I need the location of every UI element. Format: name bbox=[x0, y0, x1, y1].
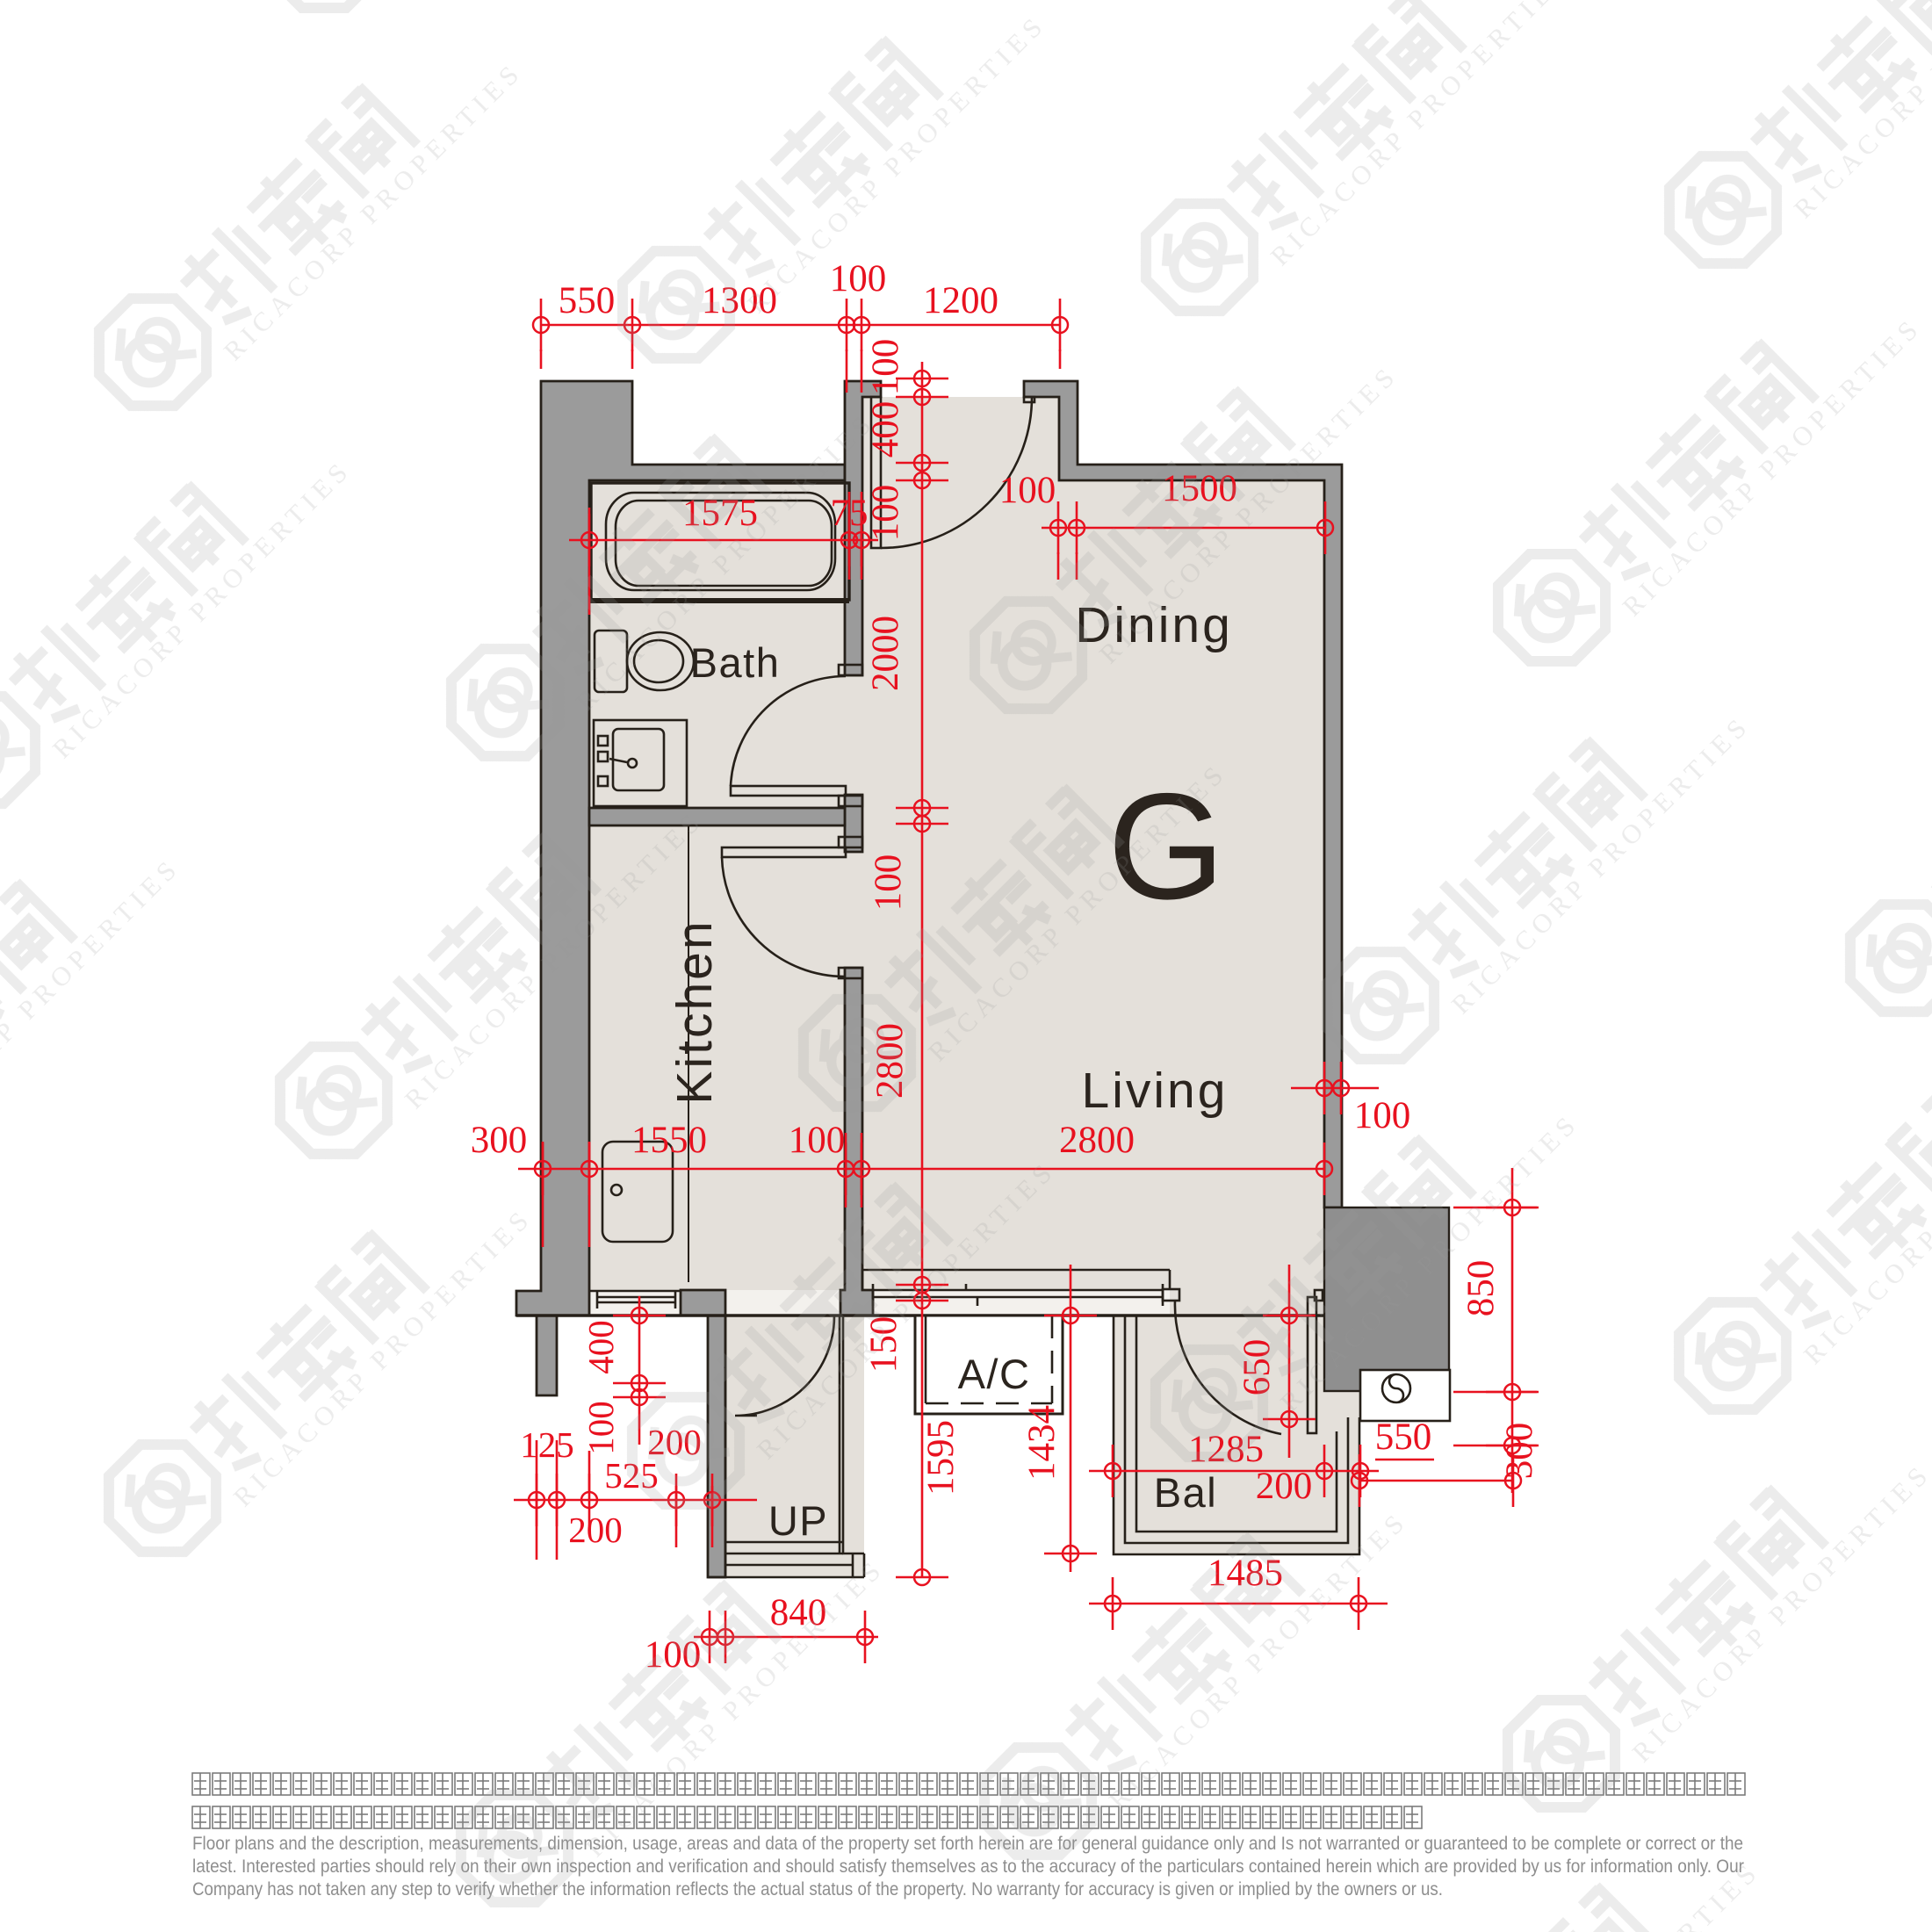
svg-text:A/C: A/C bbox=[958, 1351, 1031, 1397]
svg-text:latest. Interested parties sho: latest. Interested parties should rely o… bbox=[192, 1856, 1744, 1877]
svg-text:100: 100 bbox=[830, 258, 887, 299]
svg-text:1595: 1595 bbox=[920, 1420, 962, 1496]
svg-text:UP: UP bbox=[768, 1497, 828, 1544]
svg-text:1200: 1200 bbox=[923, 280, 998, 321]
svg-text:550: 550 bbox=[1375, 1417, 1432, 1458]
svg-text:125: 125 bbox=[520, 1424, 574, 1465]
svg-text:100: 100 bbox=[999, 470, 1056, 511]
svg-text:Living: Living bbox=[1082, 1063, 1229, 1119]
svg-text:Bath: Bath bbox=[690, 639, 781, 686]
svg-text:Bal: Bal bbox=[1154, 1469, 1217, 1516]
svg-text:75: 75 bbox=[831, 493, 869, 534]
svg-text:850: 850 bbox=[1460, 1260, 1502, 1317]
svg-text:2000: 2000 bbox=[865, 616, 906, 691]
svg-text:100: 100 bbox=[865, 339, 906, 396]
svg-text:400: 400 bbox=[580, 1320, 621, 1374]
svg-text:550: 550 bbox=[559, 280, 616, 321]
svg-text:300: 300 bbox=[471, 1120, 528, 1161]
svg-text:100: 100 bbox=[865, 485, 906, 542]
svg-text:100: 100 bbox=[789, 1120, 846, 1161]
svg-text:Floor plans and the descriptio: Floor plans and the description, measure… bbox=[192, 1833, 1743, 1854]
svg-text:300: 300 bbox=[1499, 1423, 1540, 1480]
svg-text:100: 100 bbox=[580, 1401, 621, 1455]
svg-text:100: 100 bbox=[1354, 1095, 1411, 1136]
svg-text:100: 100 bbox=[868, 854, 909, 912]
svg-text:200: 200 bbox=[568, 1510, 623, 1550]
svg-text:Kitchen: Kitchen bbox=[667, 919, 723, 1104]
svg-text:200: 200 bbox=[1256, 1466, 1313, 1507]
svg-text:2800: 2800 bbox=[1059, 1120, 1135, 1161]
svg-text:1434: 1434 bbox=[1021, 1405, 1063, 1481]
svg-text:1550: 1550 bbox=[631, 1120, 707, 1161]
svg-text:Company has not taken any step: Company has not taken any step to verify… bbox=[192, 1878, 1443, 1900]
